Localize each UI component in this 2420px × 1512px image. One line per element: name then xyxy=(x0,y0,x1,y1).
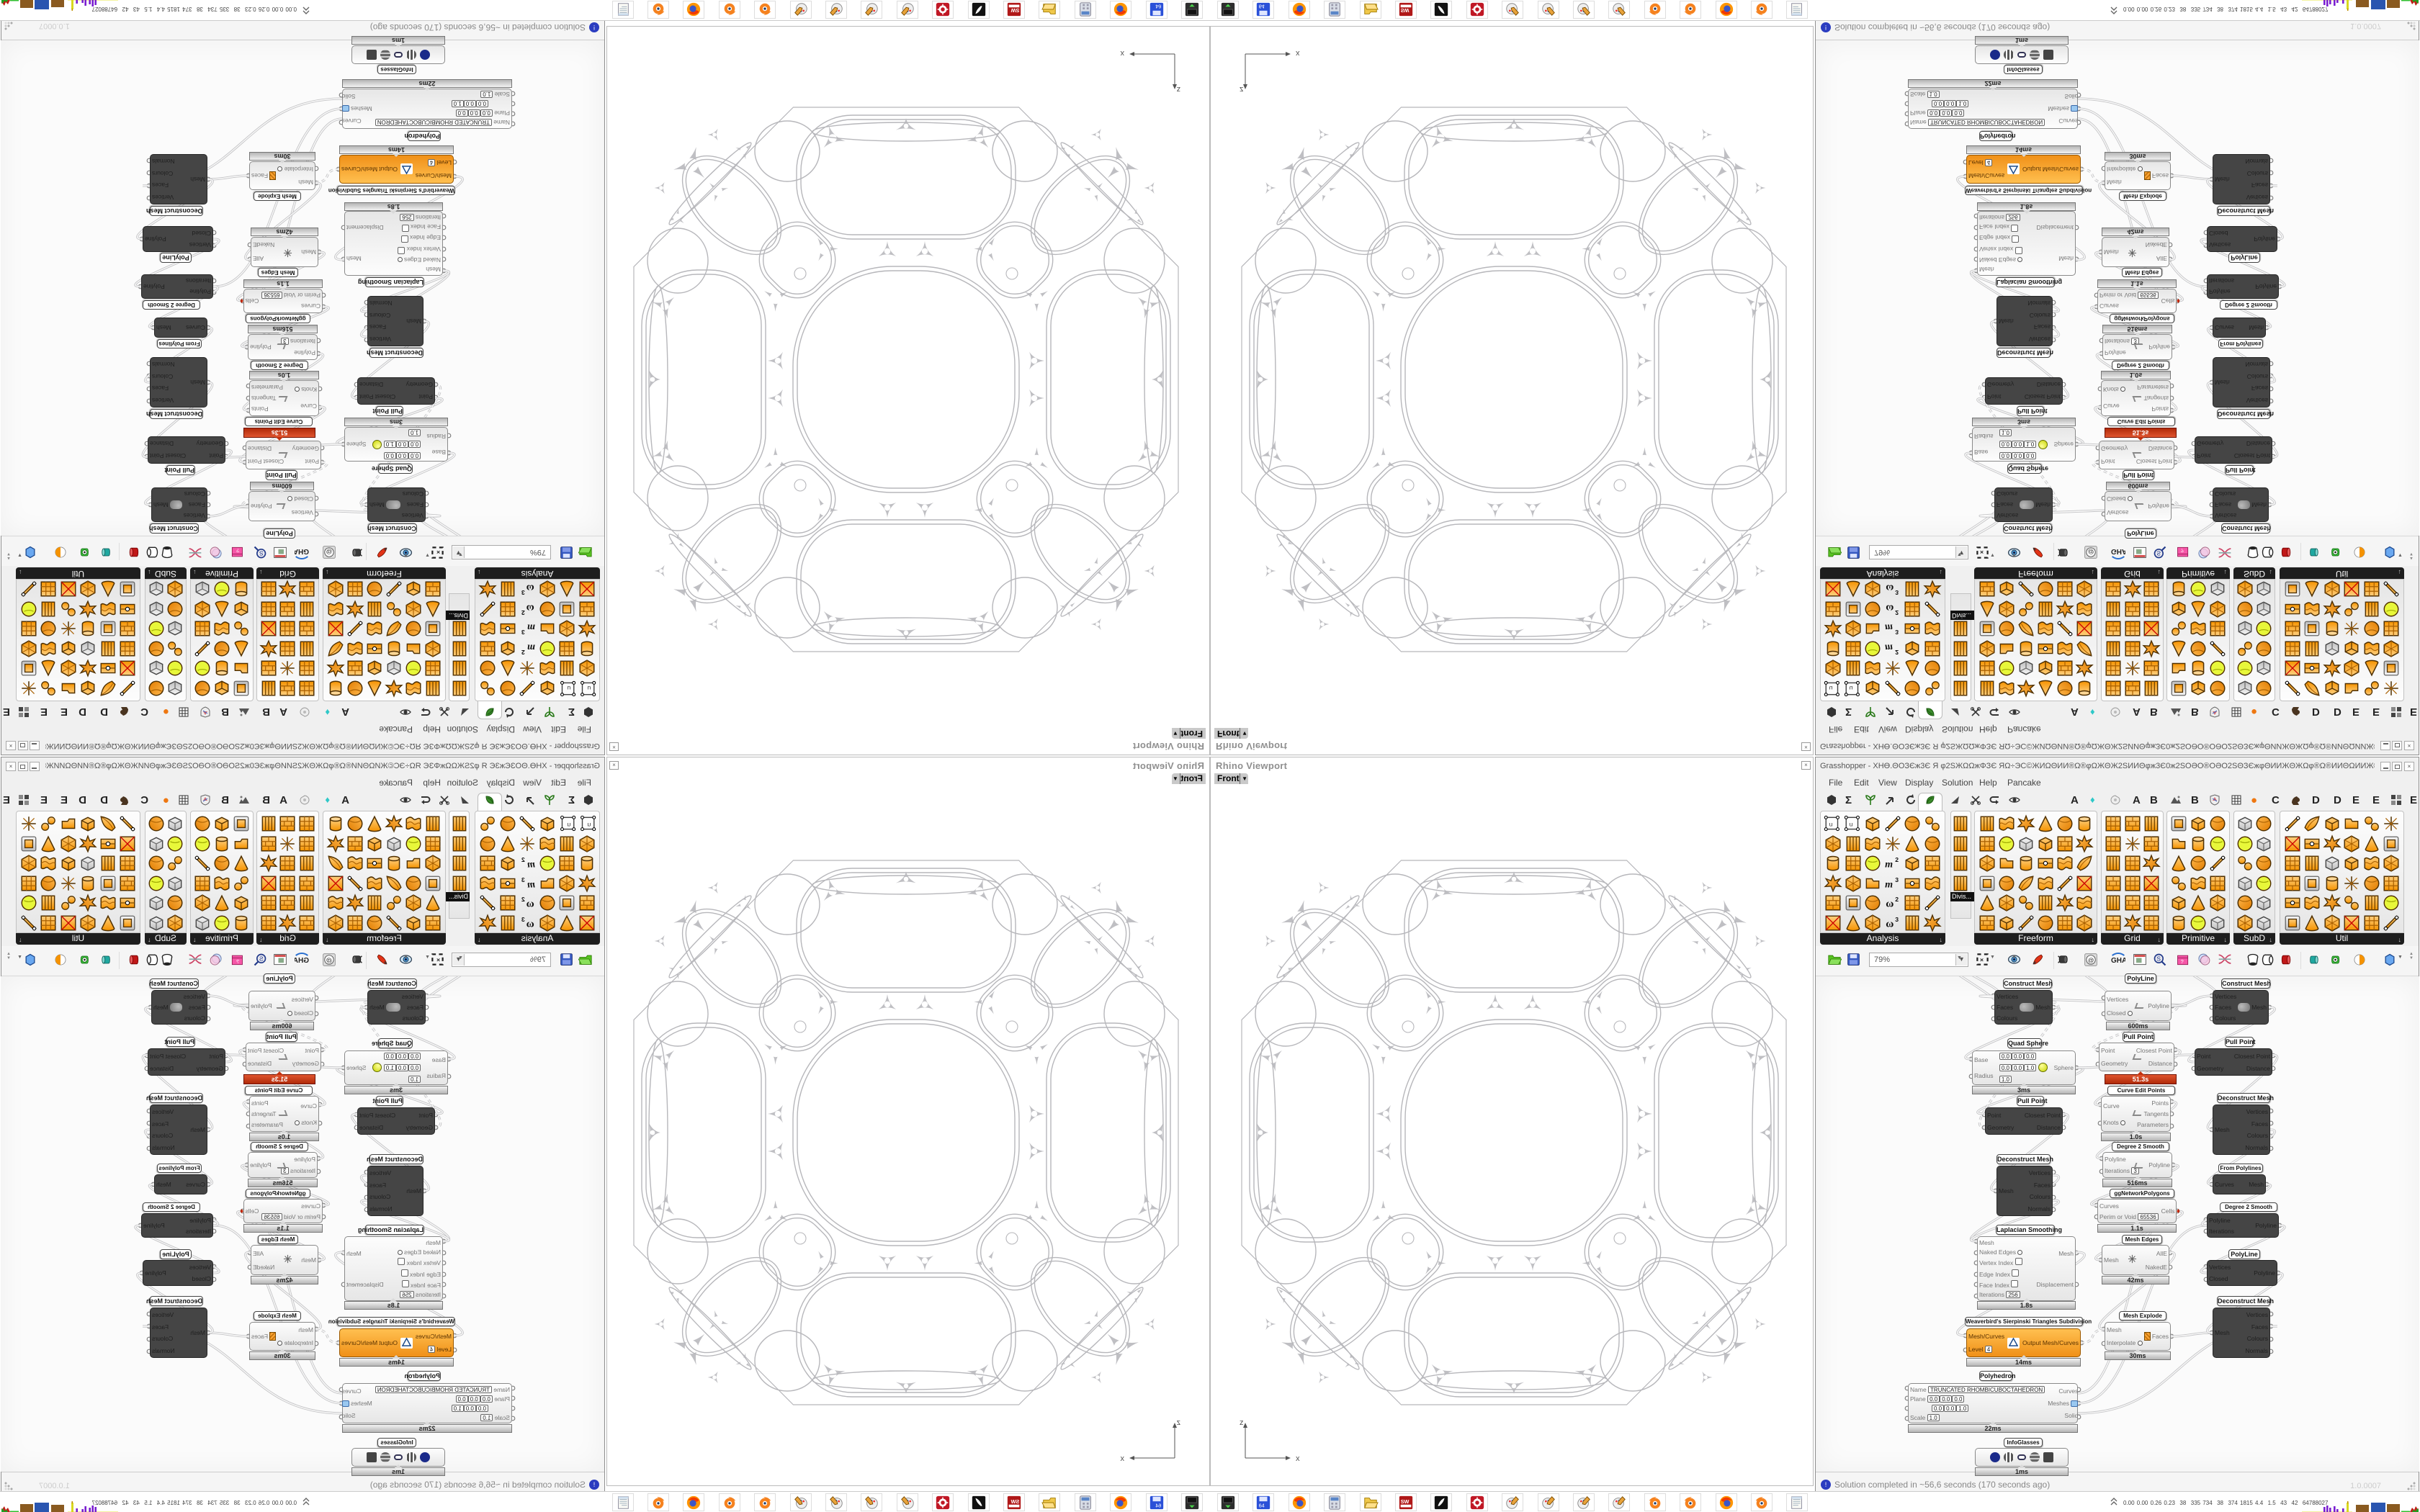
svg-text:x: x xyxy=(1120,1454,1124,1463)
svg-text:SW: SW xyxy=(1401,1498,1410,1505)
svg-text:?: ? xyxy=(2181,547,2184,554)
svg-text:@: @ xyxy=(326,956,332,963)
svg-text:×: × xyxy=(1980,549,1984,556)
svg-text:S: S xyxy=(259,549,264,557)
svg-text:z: z xyxy=(1240,85,1244,94)
svg-text:?: ? xyxy=(2181,958,2184,965)
svg-text:SW: SW xyxy=(1010,1498,1019,1505)
svg-text:×: × xyxy=(1980,956,1984,963)
svg-text:z: z xyxy=(1177,1418,1181,1427)
svg-text:GHA: GHA xyxy=(2111,547,2125,555)
svg-text:z: z xyxy=(1240,1418,1244,1427)
svg-text:?: ? xyxy=(236,958,239,965)
svg-text:x: x xyxy=(1120,49,1124,58)
svg-text:S: S xyxy=(2156,955,2161,963)
svg-text:64: 64 xyxy=(1155,4,1161,10)
svg-text:z: z xyxy=(1177,85,1181,94)
svg-text:64: 64 xyxy=(1259,1502,1265,1508)
svg-text:S: S xyxy=(2156,549,2161,557)
svg-text:×: × xyxy=(436,549,440,556)
svg-text:GHA: GHA xyxy=(2111,957,2125,965)
svg-text:64: 64 xyxy=(1259,4,1265,10)
svg-text:GHA: GHA xyxy=(295,547,309,555)
svg-text:64: 64 xyxy=(1155,1502,1161,1508)
svg-text:@: @ xyxy=(2088,549,2094,556)
svg-text:×: × xyxy=(436,956,440,963)
svg-text:x: x xyxy=(1296,1454,1300,1463)
svg-text:S: S xyxy=(259,955,264,963)
svg-text:SW: SW xyxy=(1401,7,1410,14)
svg-text:?: ? xyxy=(236,547,239,554)
svg-text:x: x xyxy=(1296,49,1300,58)
svg-text:GHA: GHA xyxy=(295,957,309,965)
svg-text:@: @ xyxy=(326,549,332,556)
svg-text:SW: SW xyxy=(1010,7,1019,14)
svg-text:@: @ xyxy=(2088,956,2094,963)
